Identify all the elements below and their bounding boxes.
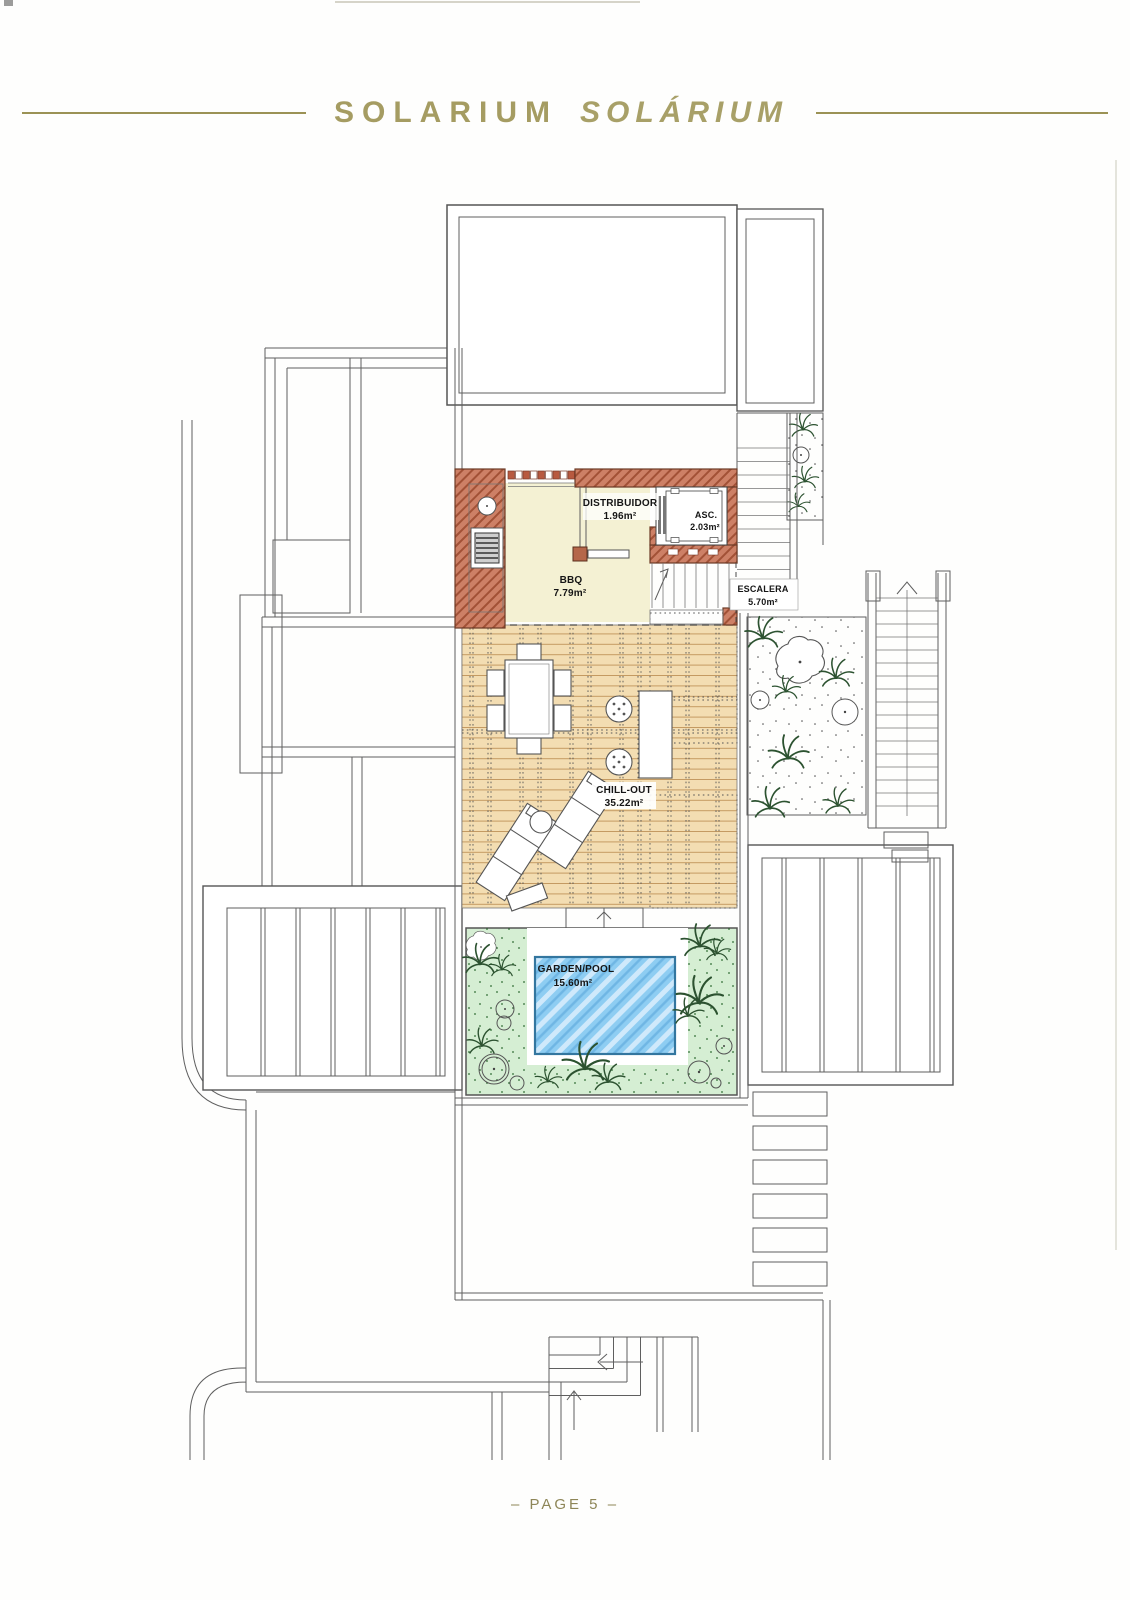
pergola-left xyxy=(203,886,462,1090)
label-escalera-name: ESCALERA xyxy=(737,584,788,594)
brochure-page: SOLARIUMSOLÁRIUM xyxy=(0,0,1130,1600)
label-bbq-area: 7.79m² xyxy=(554,588,587,599)
label-chill-out-name: CHILL-OUT xyxy=(596,785,652,796)
round-table-1 xyxy=(606,696,632,722)
chair xyxy=(554,670,571,696)
label-chill-out-area: 35.22m² xyxy=(605,798,644,809)
label-distribuidor-name: DISTRIBUIDOR xyxy=(583,498,658,509)
pergola-right xyxy=(748,845,953,1085)
label-bbq-name: BBQ xyxy=(560,575,583,586)
chimney-shaft xyxy=(240,595,282,773)
stair-below-corner xyxy=(549,1337,643,1430)
label-escalera-area: 5.70m² xyxy=(748,597,778,607)
side-table xyxy=(530,811,552,833)
elevator xyxy=(656,487,727,555)
dining-table xyxy=(505,660,553,738)
chair xyxy=(517,738,541,754)
chair xyxy=(554,705,571,731)
label-garden-pool-area: 15.60m² xyxy=(554,978,593,989)
label-asc-name: ASC. xyxy=(695,510,717,520)
chill-out-deck: CHILL-OUT 35.22m² xyxy=(462,613,737,911)
bench-sofa xyxy=(639,691,672,778)
label-asc-area: 2.03m² xyxy=(690,522,720,532)
garden-patch-right xyxy=(745,617,866,817)
page-number: – PAGE 5 – xyxy=(511,1496,619,1513)
garden-pool: GARDEN/POOL 15.60m² xyxy=(463,924,737,1095)
elevator-door-rail xyxy=(663,496,666,534)
grill xyxy=(471,528,503,568)
planter-strip xyxy=(787,413,823,520)
chair xyxy=(487,670,504,696)
chair xyxy=(487,705,504,731)
chair xyxy=(517,644,541,660)
floor-plan-svg: CHILL-OUT 35.22m² xyxy=(0,0,1130,1600)
stair-landing xyxy=(650,610,723,624)
lower-level-outlines xyxy=(455,1092,830,1460)
round-table-2 xyxy=(606,749,632,775)
bbq-block: DISTRIBUIDOR 1.96m² ASC. 2.03m² BBQ 7.79… xyxy=(455,469,737,628)
page-footer: – PAGE 5 – xyxy=(0,1496,1130,1513)
label-distribuidor-area: 1.96m² xyxy=(604,511,637,522)
exterior-steps-column xyxy=(753,1092,827,1286)
label-garden-pool-name: GARDEN/POOL xyxy=(538,964,615,975)
exterior-staircase xyxy=(866,571,950,862)
skylight-hatch xyxy=(273,540,350,613)
